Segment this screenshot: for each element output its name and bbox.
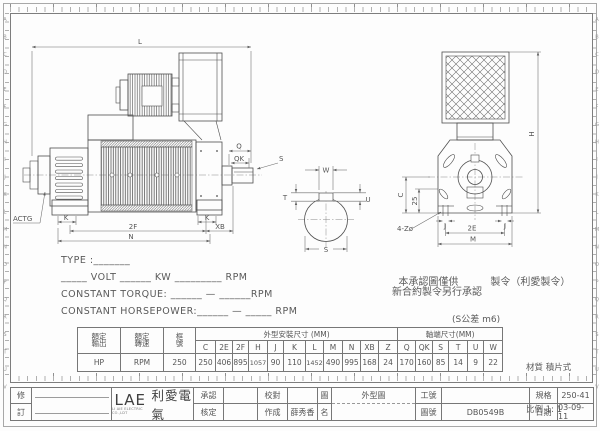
fig-label: 圖 <box>318 388 331 404</box>
spec-torque-line: CONSTANT TORQUE: ______ — ______RPM <box>61 289 297 306</box>
col-header: Q <box>398 341 416 354</box>
svg-text:H: H <box>528 131 536 136</box>
svg-text:W: W <box>323 167 330 175</box>
dim-value: 406 <box>216 354 233 372</box>
svg-text:U: U <box>365 196 370 204</box>
spec-type-line: TYPE :_______ <box>61 255 297 272</box>
svg-text:QK: QK <box>234 155 245 163</box>
left-end-bracket <box>50 148 88 215</box>
dim-value: 110 <box>284 354 306 372</box>
approve-label: 承認 <box>194 388 223 404</box>
col-header: H <box>249 341 268 354</box>
drawing-name-value: 外型圖 <box>332 388 415 404</box>
table-group-header-row: 額定 輸出 額定 轉速 框 號 外型安裝尺寸 (MM) 軸端尺寸(MM) <box>78 328 503 341</box>
svg-text:K: K <box>64 214 69 222</box>
terminal-box <box>88 115 133 140</box>
drawing-name-label-column: 圖 名 <box>317 388 331 420</box>
work-drawing-no-labels: 工號 圖號 <box>415 388 441 420</box>
table-value-row: HP RPM 250 250 406 895 1057 90 110 1452 … <box>78 354 503 372</box>
rated-speed-header: 額定 轉速 <box>121 328 164 354</box>
proof-label: 校對 <box>258 388 287 404</box>
dimension-table: 額定 輸出 額定 轉速 框 號 外型安裝尺寸 (MM) 軸端尺寸(MM) C 2… <box>77 327 503 372</box>
spec-date-labels: 規格 日期 <box>529 388 557 420</box>
blower-assembly <box>116 53 222 140</box>
logo-company-name: 利愛電氣 <box>152 385 194 423</box>
proof-value <box>288 388 317 404</box>
svg-text:L: L <box>138 38 142 46</box>
approve-check-values <box>223 388 257 420</box>
motor-front-view: H C 25 J J 2E M 4-Zø <box>397 52 541 247</box>
dim-value: 1452 <box>306 354 324 372</box>
dim-value: 490 <box>324 354 343 372</box>
rated-output-value: HP <box>78 354 121 372</box>
work-drawing-no-values: DB0549B <box>441 388 529 420</box>
col-header: J <box>268 341 284 354</box>
dim-value: 14 <box>449 354 468 372</box>
rated-output-header: 額定 輸出 <box>78 328 121 354</box>
dim-value: 9 <box>468 354 484 372</box>
col-header: W <box>484 341 503 354</box>
svg-text:25: 25 <box>411 197 419 206</box>
svg-text:2E: 2E <box>468 225 477 233</box>
engineering-drawing-sheet: { "sheet": { "row_letters": "ABCDEFGHIJK… <box>0 0 600 430</box>
col-header: C <box>196 341 216 354</box>
material-note: 材質 積片式 <box>526 361 571 375</box>
col-header: 2F <box>233 341 249 354</box>
svg-text:S: S <box>279 155 284 163</box>
fan-grille <box>442 52 509 123</box>
company-logo: LAE LI AIE ELECTRIC CO.,LDT 利愛電氣 <box>111 388 193 420</box>
shaft-tolerance-note: (S公差 m6) <box>452 312 500 325</box>
svg-text:Q: Q <box>236 143 242 151</box>
motor-side-view: L Q QK S K K 2F XB N ACTG <box>13 38 284 244</box>
drawing-name-blank <box>332 404 415 420</box>
spec-value: 250-41 <box>558 388 593 404</box>
revision-label-bottom: 訂 <box>11 404 31 420</box>
spec-date-values: 250-41 03-09-11 <box>557 388 593 420</box>
date-label: 日期 <box>530 404 557 420</box>
svg-text:T: T <box>282 194 288 202</box>
shaft-end-view: W T U S <box>282 166 371 254</box>
drawing-no-label: 圖號 <box>416 404 441 420</box>
svg-text:S: S <box>324 246 329 254</box>
proof-made-labels: 校對 作成 <box>257 388 287 420</box>
logo-lae-text: LAE <box>115 393 146 408</box>
revision-rule-line <box>35 413 109 414</box>
drawing-no-value: DB0549B <box>442 404 529 420</box>
right-end-bracket <box>196 142 222 215</box>
made-value: 薛秀香 <box>288 404 317 420</box>
date-value: 03-09-11 <box>558 404 593 420</box>
shaft <box>222 166 253 185</box>
finned-frame <box>88 140 196 212</box>
frame-no-value: 250 <box>164 354 196 372</box>
svg-text:N: N <box>128 233 133 241</box>
logo-subtext: LI AIE ELECTRIC CO.,LDT <box>112 408 149 415</box>
dim-value: 250 <box>196 354 216 372</box>
approve-value <box>224 388 257 404</box>
approval-note-line2: 新合約製令另行承認 <box>392 283 482 298</box>
approve-check-labels: 承認 核定 <box>193 388 223 420</box>
col-header: S <box>433 341 449 354</box>
col-header: K <box>284 341 306 354</box>
dim-value: 90 <box>268 354 284 372</box>
name-label: 名 <box>318 404 331 420</box>
rated-speed-value: RPM <box>121 354 164 372</box>
revision-entry-area <box>31 388 111 420</box>
svg-text:ACTG: ACTG <box>13 215 32 223</box>
work-no-value <box>442 388 529 404</box>
work-no-label: 工號 <box>416 388 441 404</box>
made-label: 作成 <box>258 404 287 420</box>
col-header: QK <box>416 341 433 354</box>
spec-volt-line: _____ VOLT ______ KW _________ RPM <box>61 272 297 289</box>
dim-value: 1057 <box>249 354 268 372</box>
spec-horsepower-line: CONSTANT HORSEPOWER:______ — _____ RPM <box>61 306 297 323</box>
col-header: 2E <box>216 341 233 354</box>
check-value <box>224 404 257 420</box>
proof-made-values: 薛秀香 <box>287 388 317 420</box>
check-label: 核定 <box>194 404 223 420</box>
col-header: XB <box>361 341 379 354</box>
svg-text:K: K <box>205 214 210 222</box>
shaft-dims-group-header: 軸端尺寸(MM) <box>398 328 503 341</box>
svg-text:XB: XB <box>215 223 225 231</box>
right-foot <box>197 200 222 215</box>
col-header: M <box>324 341 343 354</box>
dim-value: 85 <box>433 354 449 372</box>
dim-value: 160 <box>416 354 433 372</box>
dim-value: 168 <box>361 354 379 372</box>
dim-value: 170 <box>398 354 416 372</box>
svg-text:4-Zø: 4-Zø <box>397 225 414 233</box>
svg-text:2F: 2F <box>129 223 137 231</box>
spec-block: TYPE :_______ _____ VOLT ______ KW _____… <box>61 255 297 323</box>
revision-column: 修 訂 <box>11 388 31 420</box>
frame-no-header: 框 號 <box>164 328 196 354</box>
dim-value: 24 <box>379 354 398 372</box>
grille-neck <box>457 123 493 140</box>
col-header: U <box>468 341 484 354</box>
revision-label-top: 修 <box>11 388 31 404</box>
spec-label: 規格 <box>530 388 557 404</box>
left-foot <box>52 200 88 215</box>
outline-dims-group-header: 外型安裝尺寸 (MM) <box>196 328 398 341</box>
col-header: N <box>343 341 361 354</box>
dim-value: 895 <box>233 354 249 372</box>
svg-text:M: M <box>470 236 476 244</box>
title-block: 修 訂 LAE LI AIE ELECTRIC CO.,LDT 利愛電氣 承認 … <box>10 387 594 421</box>
approval-note-line1b: 製令（利愛製令） <box>490 277 570 288</box>
dim-value: 995 <box>343 354 361 372</box>
col-header: T <box>449 341 468 354</box>
revision-rule-line <box>35 397 109 398</box>
col-header: L <box>306 341 324 354</box>
col-header: Z <box>379 341 398 354</box>
svg-text:C: C <box>397 192 405 197</box>
drawing-name-cell: 外型圖 <box>331 388 415 420</box>
dim-value: 22 <box>484 354 503 372</box>
blower-duct <box>179 53 222 121</box>
keyway <box>319 193 333 201</box>
